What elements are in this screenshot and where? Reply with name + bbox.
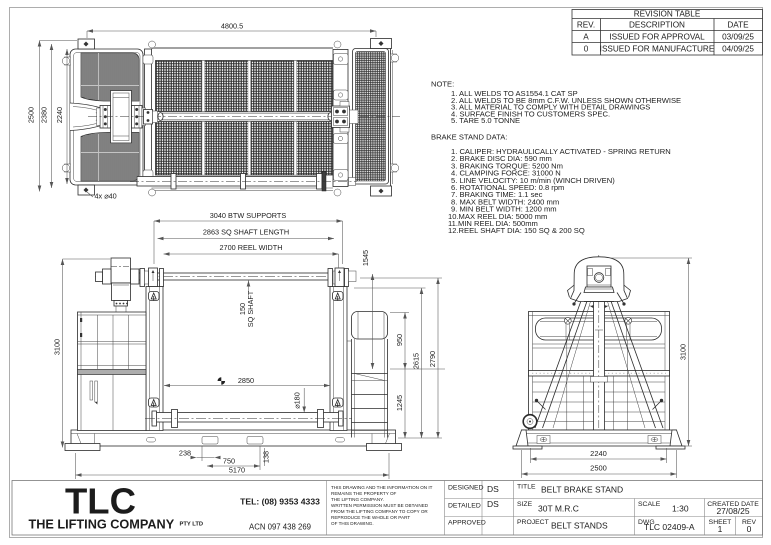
svg-text:TITLE: TITLE <box>517 484 536 491</box>
svg-text:NOTE:: NOTE: <box>431 80 454 89</box>
svg-text:DS: DS <box>487 484 499 494</box>
svg-text:1:30: 1:30 <box>672 504 689 514</box>
svg-text:2500: 2500 <box>590 464 607 473</box>
svg-text:THE LIFTING COMPANY: THE LIFTING COMPANY <box>29 518 175 532</box>
svg-text:THE LIFTING COMPANY.: THE LIFTING COMPANY. <box>331 497 384 502</box>
svg-text:0: 0 <box>747 524 752 534</box>
svg-text:3040 BTW SUPPORTS: 3040 BTW SUPPORTS <box>210 211 287 220</box>
svg-text:3100: 3100 <box>679 344 688 360</box>
svg-text:SCALE: SCALE <box>638 501 661 508</box>
svg-text:1545: 1545 <box>361 250 370 266</box>
svg-text:5. TARE 5.0 TONNE: 5. TARE 5.0 TONNE <box>451 116 520 125</box>
svg-text:238: 238 <box>179 449 191 458</box>
svg-text:2790: 2790 <box>428 351 437 367</box>
svg-text:REVISION TABLE: REVISION TABLE <box>634 10 701 19</box>
svg-text:03/09/25: 03/09/25 <box>722 33 754 42</box>
svg-text:12.REEL SHAFT DIA: 150 SQ & 20: 12.REEL SHAFT DIA: 150 SQ & 200 SQ <box>448 226 585 235</box>
svg-text:0: 0 <box>584 45 589 54</box>
svg-text:DESCRIPTION: DESCRIPTION <box>629 21 685 30</box>
svg-text:ISSUED FOR MANUFACTURE: ISSUED FOR MANUFACTURE <box>600 45 715 54</box>
svg-text:WRITTEN PERMISSION MUST BE OBT: WRITTEN PERMISSION MUST BE OBTAINED <box>331 503 429 508</box>
svg-text:SQ SHAFT: SQ SHAFT <box>246 290 255 327</box>
svg-text:PROJECT: PROJECT <box>517 519 549 526</box>
svg-text:4x ⌀40: 4x ⌀40 <box>95 192 117 201</box>
svg-text:27/08/25: 27/08/25 <box>716 506 749 516</box>
svg-text:DS: DS <box>487 499 499 509</box>
svg-text:TEL: (08) 9353 4333: TEL: (08) 9353 4333 <box>240 497 320 507</box>
svg-text:2863 SQ SHAFT LENGTH: 2863 SQ SHAFT LENGTH <box>203 228 289 237</box>
svg-text:30T M.R.C: 30T M.R.C <box>538 504 579 514</box>
svg-text:DETAILED: DETAILED <box>448 503 481 510</box>
svg-text:TLC: TLC <box>65 481 136 522</box>
svg-text:1245: 1245 <box>395 395 404 411</box>
svg-text:ISSUED FOR APPROVAL: ISSUED FOR APPROVAL <box>609 33 705 42</box>
svg-text:SIZE: SIZE <box>517 501 533 508</box>
svg-text:TLC 02409-A: TLC 02409-A <box>644 522 695 532</box>
svg-text:REPRODUCE THE WHOLE OR PART: REPRODUCE THE WHOLE OR PART <box>331 515 410 520</box>
svg-text:2240: 2240 <box>590 449 607 458</box>
svg-text:REV.: REV. <box>577 21 595 30</box>
svg-text:BRAKE STAND DATA:: BRAKE STAND DATA: <box>431 133 507 142</box>
svg-text:3100: 3100 <box>53 339 62 355</box>
svg-text:⌀180: ⌀180 <box>292 392 301 409</box>
svg-text:REMAINS THE PROPERTY OF: REMAINS THE PROPERTY OF <box>331 491 397 496</box>
svg-text:138: 138 <box>262 451 271 463</box>
svg-text:5170: 5170 <box>229 466 245 475</box>
svg-text:ACN 097 438 269: ACN 097 438 269 <box>249 523 311 532</box>
svg-text:04/09/25: 04/09/25 <box>722 45 754 54</box>
svg-text:750: 750 <box>223 457 235 466</box>
svg-text:BELT BRAKE STAND: BELT BRAKE STAND <box>541 485 623 495</box>
svg-text:THIS DRAWING AND THE INFORMATI: THIS DRAWING AND THE INFORMATION ON IT <box>331 485 433 490</box>
svg-text:DESIGNED: DESIGNED <box>448 485 484 492</box>
svg-text:A: A <box>583 33 589 42</box>
svg-text:DATE: DATE <box>727 21 749 30</box>
svg-text:2615: 2615 <box>412 353 421 369</box>
svg-text:950: 950 <box>395 334 404 346</box>
svg-text:2380: 2380 <box>40 107 49 123</box>
svg-text:OF THIS DRAWING.: OF THIS DRAWING. <box>331 521 374 526</box>
svg-text:2240: 2240 <box>55 107 64 123</box>
svg-text:1: 1 <box>718 524 723 534</box>
svg-text:FROM THE LIFTING COMPANY TO CO: FROM THE LIFTING COMPANY TO COPY OR <box>331 509 428 514</box>
svg-text:2500: 2500 <box>27 107 36 123</box>
svg-text:PTY LTD: PTY LTD <box>180 522 204 528</box>
svg-text:2850: 2850 <box>238 376 254 385</box>
svg-text:4800.5: 4800.5 <box>221 22 243 31</box>
svg-text:2700 REEL WIDTH: 2700 REEL WIDTH <box>220 243 283 252</box>
svg-text:APPROVED: APPROVED <box>448 520 486 527</box>
svg-text:BELT STANDS: BELT STANDS <box>551 521 608 531</box>
